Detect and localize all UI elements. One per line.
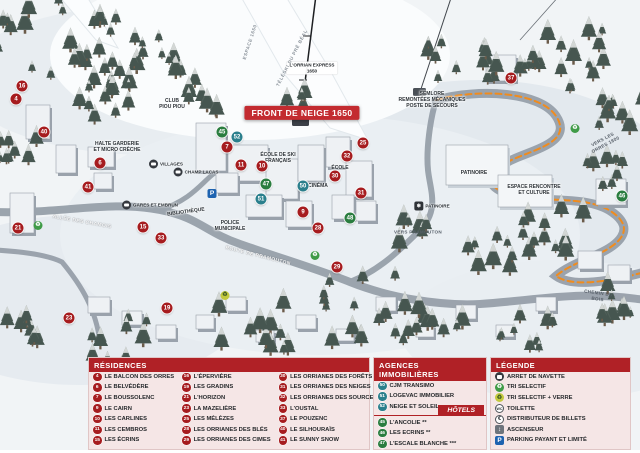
map-label: VERS LES ORRES 1800 — [586, 129, 623, 156]
map-marker-45: 45 — [217, 127, 228, 138]
map-marker-46: 46 — [617, 191, 628, 202]
map-label: ROUTE DE PRAMOUTON — [225, 245, 292, 267]
map-marker-40: 40 — [39, 127, 50, 138]
legende-label: ARRET DE NAVETTE — [507, 374, 565, 380]
badge-45: 45 — [378, 418, 387, 427]
legend-row: 6LE BELVÉDÈRE — [89, 382, 178, 393]
legende-row: ARRET DE NAVETTE — [491, 372, 630, 383]
legend-label: L'ANCOLIE ** — [390, 420, 427, 426]
map-label: POLICE MUNICIPALE — [215, 220, 246, 232]
badge-25: 25 — [182, 415, 191, 424]
legende-label: PARKING PAYANT ET LIMITÉ — [507, 437, 587, 443]
legend-label: LE CAIRN — [105, 406, 132, 412]
bus-stop-label: GARES ET EMBRUN — [133, 203, 178, 208]
map-marker-9: 9 — [298, 207, 309, 218]
legend-row: 41LE SUNNY SNOW — [275, 435, 382, 446]
recycle-glass-icon — [495, 393, 504, 402]
panel-legende-title: LÉGENDE — [491, 358, 630, 372]
badge-47: 47 — [378, 440, 387, 449]
bus-icon — [495, 372, 504, 381]
legende-row: DISTRIBUTEUR DE BILLETS — [491, 414, 630, 425]
legend-label: LE BOUSSOLENC — [105, 395, 155, 401]
legend-row: 19LES GRADINS — [178, 382, 274, 393]
legende-row: TRI SELECTIF — [491, 382, 630, 393]
bus-stop-label: CHAMP LACAS — [185, 170, 219, 175]
badge-28: 28 — [182, 426, 191, 435]
recycle-icon — [311, 251, 320, 260]
legende-label: DISTRIBUTEUR DE BILLETS — [507, 416, 586, 422]
badge-41: 41 — [279, 436, 288, 445]
parking-icon — [208, 189, 217, 198]
hotels-title: HÔTELS — [438, 405, 484, 415]
legend-row: 29LES ORRIANES DES CIMES — [178, 435, 274, 446]
badge-29: 29 — [182, 436, 191, 445]
map-marker-19: 19 — [162, 303, 173, 314]
legende-label: TRI SELECTIF + VERRE — [507, 395, 573, 401]
badge-11: 11 — [93, 426, 102, 435]
map-marker-30: 30 — [330, 171, 341, 182]
legend-label: LE BELVÉDÈRE — [105, 384, 149, 390]
legend-label: L'OUSTAL — [290, 406, 318, 412]
map-marker-50: 50 — [298, 181, 309, 192]
badge-51: 51 — [378, 392, 387, 401]
map-marker-47: 47 — [261, 179, 272, 190]
legend-label: LOGEVAC IMMOBILIER — [390, 393, 455, 399]
badge-7: 7 — [93, 394, 102, 403]
map-label: ALLÉE DES CHAMOIS — [52, 214, 112, 230]
panel-residences: RÉSIDENCES 4LE BALCON DES ORRES6LE BELVÉ… — [88, 357, 370, 450]
map-marker-52: 52 — [232, 132, 243, 143]
legend-row: 25LES MÉLÈZES — [178, 414, 274, 425]
facility-text: PATINOIRE — [425, 204, 449, 209]
legend-label: LES ORRIANES DES BLÉS — [194, 427, 268, 433]
badge-19: 19 — [182, 383, 191, 392]
legende-row: ASCENSEUR — [491, 424, 630, 435]
map-label: CHEMIN DU BOIS — [576, 288, 619, 305]
map-marker-41: 41 — [83, 182, 94, 193]
panel-agences: AGENCES IMMOBILIÈRES 50CJM TRANSIMO51LOG… — [373, 357, 487, 450]
badge-32: 32 — [279, 394, 288, 403]
legend-row: 37LE POUZENC — [275, 414, 382, 425]
bus-stop: GARES ET EMBRUN — [122, 201, 178, 210]
legend-row: 10LES CARLINES — [89, 414, 178, 425]
map-marker-15: 15 — [138, 222, 149, 233]
legend-label: LES ORRIANES DES NEIGES — [290, 384, 371, 390]
legend-label: LES ORRIANES DES CIMES — [194, 437, 271, 443]
legend-row: 33L'OUSTAL — [275, 403, 382, 414]
legend-label: LES ORRIANES DES SOURCES — [290, 395, 377, 401]
map-label: CLUB PIOU PIOU — [159, 98, 185, 110]
map-marker-6: 6 — [95, 158, 106, 169]
bus-icon — [122, 201, 131, 210]
badge-9: 9 — [93, 404, 102, 413]
legend-row: 45L'ANCOLIE ** — [374, 417, 486, 428]
legende-row: PARKING PAYANT ET LIMITÉ — [491, 435, 630, 446]
badge-37: 37 — [279, 415, 288, 424]
legende-row: TOILETTE — [491, 403, 630, 414]
badge-33: 33 — [279, 404, 288, 413]
legend-row: 7LE BOUSSOLENC — [89, 393, 178, 404]
front-de-neige-banner: FRONT DE NEIGE 1650 — [244, 106, 359, 120]
legend-label: L'ÉPERVIÈRE — [194, 374, 232, 380]
map-marker-51: 51 — [256, 194, 267, 205]
legende-label: TRI SELECTIF — [507, 384, 546, 390]
badge-50: 50 — [378, 382, 387, 391]
badge-30: 30 — [279, 373, 288, 382]
legend-label: LES ORRIANES DES FORÊTS — [290, 374, 372, 380]
map-marker-21: 21 — [13, 223, 24, 234]
bus-stop: CHAMP LACAS — [174, 168, 219, 177]
map-marker-23: 23 — [64, 313, 75, 324]
recycle-icon — [34, 221, 43, 230]
badge-31: 31 — [279, 383, 288, 392]
map-label: SEMLORE REMONTÉES MÉCANIQUES POSTE DE SE… — [399, 91, 466, 109]
legend-label: LES GRADINS — [194, 384, 234, 390]
badge-46: 46 — [378, 429, 387, 438]
map-marker-33: 33 — [156, 233, 167, 244]
map-marker-4: 4 — [11, 94, 22, 105]
legend-row: 15LES ÉCRINS — [89, 435, 178, 446]
badge-21: 21 — [182, 394, 191, 403]
legend-label: LES ÉCRINS — [105, 437, 140, 443]
legende-label: TOILETTE — [507, 406, 535, 412]
ice-rink-icon — [414, 202, 423, 211]
legend-label: LE POUZENC — [290, 416, 327, 422]
map-marker-11: 11 — [236, 160, 247, 171]
recycle-icon — [495, 383, 504, 392]
residences-column-2: 16L'ÉPERVIÈRE19LES GRADINS21L'HORIZON23L… — [178, 372, 274, 446]
panel-legende: LÉGENDE ARRET DE NAVETTETRI SELECTIFTRI … — [490, 357, 631, 450]
legend-row: 40LE SILHOURAÏS — [275, 424, 382, 435]
badge-16: 16 — [182, 373, 191, 382]
legend-label: LES ECRINS ** — [390, 430, 431, 436]
map-marker-28: 28 — [313, 223, 324, 234]
legend-row: 23LA MAZELIÈRE — [178, 403, 274, 414]
legend-row: 32LES ORRIANES DES SOURCES — [275, 393, 382, 404]
legende-list: ARRET DE NAVETTETRI SELECTIFTRI SELECTIF… — [491, 372, 630, 446]
badge-52: 52 — [378, 403, 387, 412]
map-marker-29: 29 — [332, 262, 343, 273]
legend-label: LE BALCON DES ORRES — [105, 374, 175, 380]
legend-label: LES MÉLÈZES — [194, 416, 234, 422]
legend-row: 30LES ORRIANES DES FORÊTS — [275, 372, 382, 383]
badge-10: 10 — [93, 415, 102, 424]
legend-row: 51LOGEVAC IMMOBILIER — [374, 391, 486, 402]
legend-label: CJM TRANSIMO — [390, 383, 435, 389]
legend-label: LE SUNNY SNOW — [290, 437, 339, 443]
map-label: PATINOIRE — [461, 170, 487, 176]
parking-icon — [495, 436, 504, 445]
residences-columns: 4LE BALCON DES ORRES6LE BELVÉDÈRE7LE BOU… — [89, 372, 369, 446]
badge-40: 40 — [279, 426, 288, 435]
legend-label: LA MAZELIÈRE — [194, 406, 237, 412]
recycle-icon — [571, 124, 580, 133]
legend-row: 16L'ÉPERVIÈRE — [178, 372, 274, 383]
map-marker-16: 16 — [17, 81, 28, 92]
legend-row: 47L'ESCALE BLANCHE *** — [374, 438, 486, 449]
map-marker-48: 48 — [345, 213, 356, 224]
legend-row: 21L'HORIZON — [178, 393, 274, 404]
legende-label: ASCENSEUR — [507, 427, 543, 433]
badge-15: 15 — [93, 436, 102, 445]
hotels-divider: HÔTELS — [374, 415, 486, 416]
map-icon-wrap — [571, 116, 580, 134]
legende-row: TRI SELECTIF + VERRE — [491, 393, 630, 404]
badge-23: 23 — [182, 404, 191, 413]
map-label: ESPACE RENCONTRE ET CULTURE — [507, 184, 560, 196]
legend-row: 46LES ECRINS ** — [374, 428, 486, 439]
map-marker-7: 7 — [222, 142, 233, 153]
map-icon-wrap — [208, 182, 217, 200]
map-icon-wrap — [311, 243, 320, 261]
facility-label: PATINOIRE — [414, 202, 449, 211]
legend-label: L'HORIZON — [194, 395, 226, 401]
legend-row: 31LES ORRIANES DES NEIGES — [275, 382, 382, 393]
map-marker-31: 31 — [356, 188, 367, 199]
bus-icon — [149, 160, 158, 169]
map-marker-25: 25 — [358, 138, 369, 149]
hotels-list: 45L'ANCOLIE **46LES ECRINS **47L'ESCALE … — [374, 417, 486, 453]
map-marker-32: 32 — [342, 151, 353, 162]
legend-row: 9LE CAIRN — [89, 403, 178, 414]
panel-agences-title: AGENCES IMMOBILIÈRES — [374, 358, 486, 381]
legend-row: 50CJM TRANSIMO — [374, 381, 486, 392]
residences-column-1: 4LE BALCON DES ORRES6LE BELVÉDÈRE7LE BOU… — [89, 372, 178, 446]
panel-residences-title: RÉSIDENCES — [89, 358, 369, 372]
legend-label: LES CEMBROS — [105, 427, 148, 433]
elevator-icon — [495, 425, 504, 434]
legend-row: 11LES CEMBROS — [89, 424, 178, 435]
map-label: TÉLÉSKI DU PRÉ BÉAL — [275, 29, 309, 88]
legend-label: LES CARLINES — [105, 416, 148, 422]
badge-4: 4 — [93, 373, 102, 382]
map-label: VERS PRAMOUTON — [394, 229, 442, 235]
resort-map: FRONT DE NEIGE 1650L'ORRIAN EXPRESS 1650… — [0, 0, 640, 453]
map-icon-wrap — [34, 213, 43, 231]
map-label: ESPACE 1650 — [242, 24, 259, 61]
recycle-glass-icon — [221, 291, 230, 300]
bus-stop-label: VILLAGES — [160, 162, 183, 167]
legend-label: NEIGE ET SOLEIL — [390, 404, 440, 410]
map-marker-37: 37 — [506, 73, 517, 84]
legend-row: 4LE BALCON DES ORRES — [89, 372, 178, 383]
legend-row: 28LES ORRIANES DES BLÉS — [178, 424, 274, 435]
map-label: HALTE GARDERIE ET MICRO CRÈCHE — [94, 141, 141, 153]
legend-label: L'ESCALE BLANCHE *** — [390, 441, 457, 447]
badge-6: 6 — [93, 383, 102, 392]
wc-icon — [495, 404, 504, 413]
map-icon-wrap — [221, 283, 230, 301]
residences-column-3: 30LES ORRIANES DES FORÊTS31LES ORRIANES … — [275, 372, 382, 446]
map-label: CINÉMA — [308, 183, 328, 189]
euro-icon — [495, 415, 504, 424]
map-marker-10: 10 — [257, 161, 268, 172]
bus-icon — [174, 168, 183, 177]
map-label: L'ORRIAN EXPRESS 1650 — [287, 62, 338, 75]
legend-label: LE SILHOURAÏS — [290, 427, 335, 433]
